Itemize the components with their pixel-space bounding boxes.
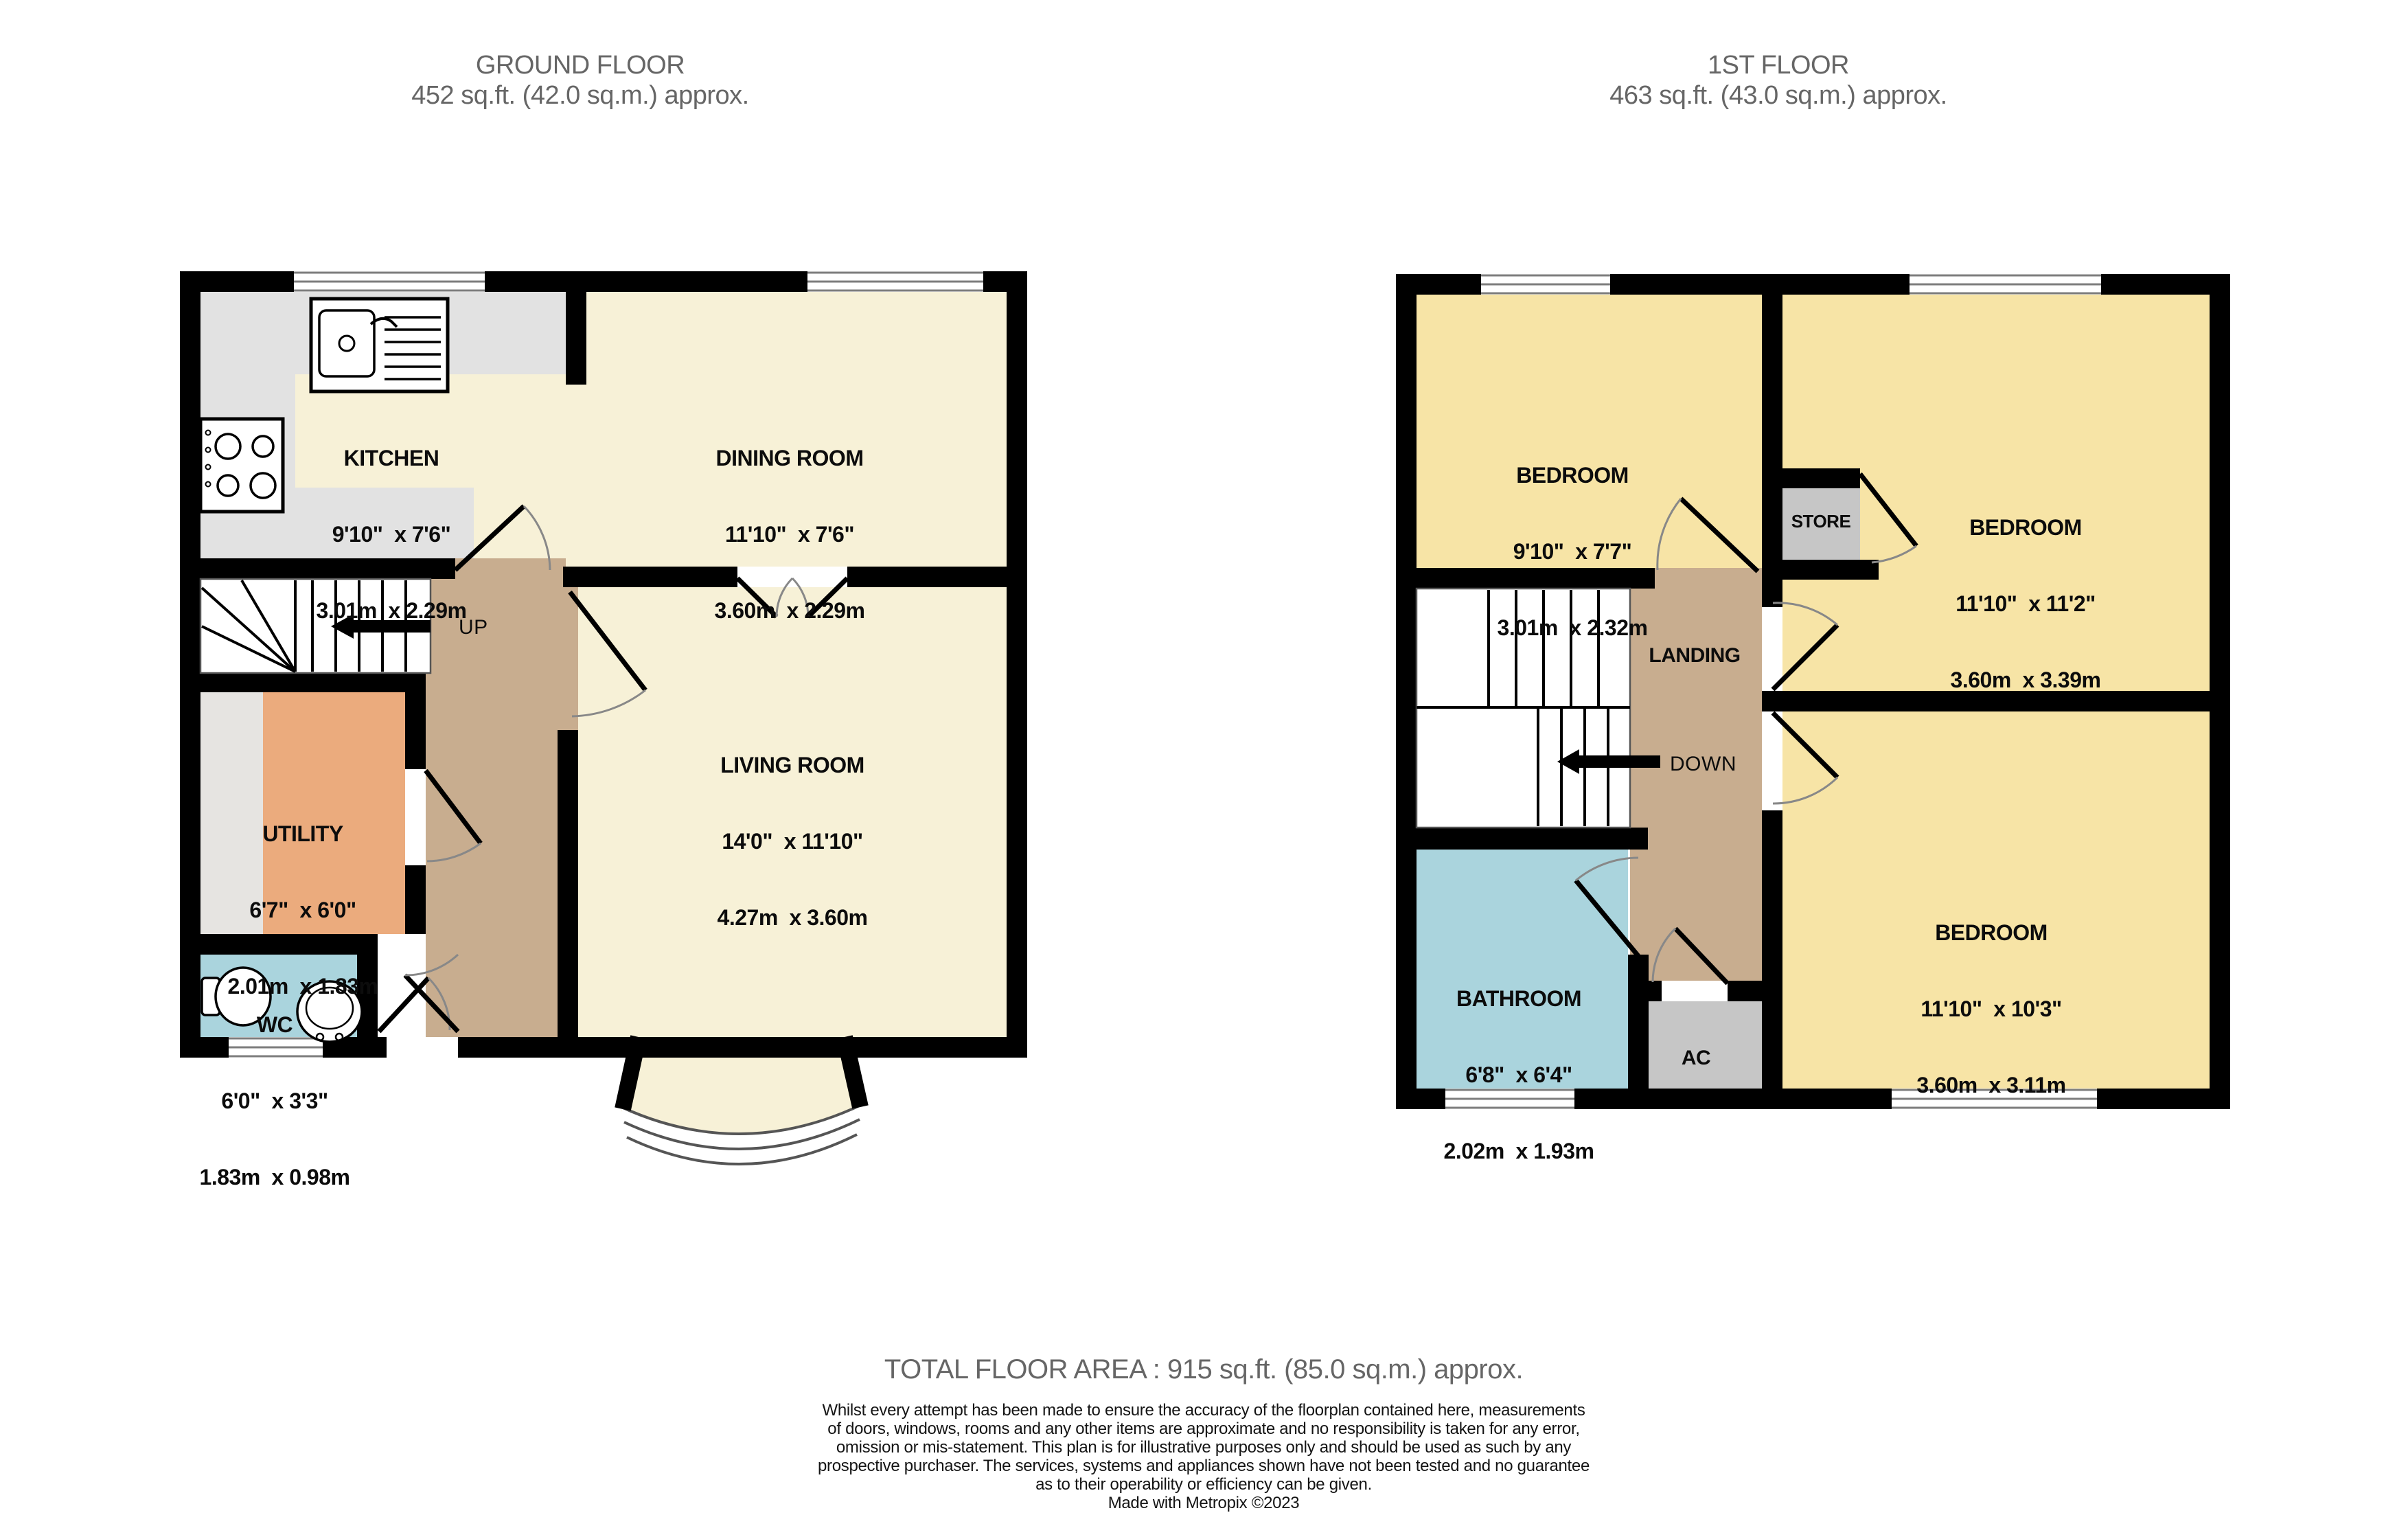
bedroom2-name: BEDROOM — [1951, 515, 2101, 540]
bedroom1-name: BEDROOM — [1498, 463, 1648, 488]
bathroom-dims-imperial: 6'8" x 6'4" — [1444, 1062, 1594, 1088]
ac-floor — [1649, 1001, 1762, 1089]
disclaimer-line: of doors, windows, rooms and any other i… — [827, 1420, 1579, 1438]
living-name: LIVING ROOM — [718, 753, 868, 778]
hob-icon — [200, 419, 283, 512]
bathroom-name: BATHROOM — [1444, 986, 1594, 1012]
bedroom1-dims-metric: 3.01m x 2.32m — [1498, 615, 1648, 641]
dining-window — [807, 271, 983, 292]
disclaimer-line: prospective purchaser. The services, sys… — [818, 1457, 1590, 1475]
wc-dims-imperial: 6'0" x 3'3" — [200, 1089, 350, 1114]
ground-floor-title: GROUND FLOOR — [476, 49, 685, 81]
bedroom3-name: BEDROOM — [1916, 920, 2065, 946]
disclaimer-line: Whilst every attempt has been made to en… — [822, 1401, 1585, 1420]
sink-unit-icon — [311, 299, 448, 391]
bedroom1-dims-imperial: 9'10" x 7'7" — [1498, 539, 1648, 565]
store-label: STORE — [1791, 511, 1851, 532]
disclaimer-line: omission or mis-statement. This plan is … — [836, 1438, 1571, 1457]
room-label-living: LIVING ROOM 14'0" x 11'10" 4.27m x 3.60m — [718, 702, 868, 981]
dining-dims-imperial: 11'10" x 7'6" — [715, 522, 865, 547]
kitchen-name: KITCHEN — [317, 446, 467, 471]
floorplan-graphic — [0, 0, 2408, 1515]
utility-dims-imperial: 6'7" x 6'0" — [228, 898, 378, 923]
bedroom2-window — [1910, 274, 2101, 295]
dining-dims-metric: 3.60m x 2.29m — [715, 598, 865, 624]
wc-name: WC — [200, 1012, 350, 1038]
front-door-opening — [387, 1037, 458, 1058]
made-with-metropix: Made with Metropix ©2023 — [1108, 1494, 1300, 1512]
kitchen-dims-imperial: 9'10" x 7'6" — [317, 522, 467, 547]
wc-dims-metric: 1.83m x 0.98m — [200, 1165, 350, 1190]
down-arrow — [1579, 755, 1660, 768]
floorplan-page: GROUND FLOOR 452 sq.ft. (42.0 sq.m.) app… — [0, 0, 2408, 1515]
room-label-bedroom3: BEDROOM 11'10" x 10'3" 3.60m x 3.11m — [1916, 869, 2065, 1149]
kitchen-dims-metric: 3.01m x 2.29m — [317, 598, 467, 624]
first-floor-title: 1ST FLOOR — [1708, 49, 1849, 81]
bathroom-dims-metric: 2.02m x 1.93m — [1444, 1139, 1594, 1164]
utility-name: UTILITY — [228, 821, 378, 847]
landing-floor-top — [1655, 568, 1762, 589]
room-label-wc: WC 6'0" x 3'3" 1.83m x 0.98m — [200, 961, 350, 1241]
ground-floor-subtitle: 452 sq.ft. (42.0 sq.m.) approx. — [411, 80, 748, 111]
disclaimer-line: as to their operability or efficiency ca… — [1035, 1475, 1372, 1494]
bedroom2-dims-metric: 3.60m x 3.39m — [1951, 668, 2101, 693]
up-label: UP — [459, 616, 488, 639]
landing-label: LANDING — [1649, 644, 1740, 668]
kitchen-window — [294, 271, 485, 292]
room-label-bedroom2: BEDROOM 11'10" x 11'2" 3.60m x 3.39m — [1951, 464, 2101, 744]
down-label: DOWN — [1670, 753, 1736, 776]
ac-label: AC — [1682, 1047, 1710, 1070]
dining-name: DINING ROOM — [715, 446, 865, 471]
room-label-bathroom: BATHROOM 6'8" x 6'4" 2.02m x 1.93m — [1444, 935, 1594, 1215]
bedroom3-dims-metric: 3.60m x 3.11m — [1916, 1073, 2065, 1098]
bedroom1-window — [1481, 274, 1610, 295]
living-dims-metric: 4.27m x 3.60m — [718, 905, 868, 931]
bedroom2-dims-imperial: 11'10" x 11'2" — [1951, 591, 2101, 617]
living-dims-imperial: 14'0" x 11'10" — [718, 829, 868, 854]
room-label-bedroom1: BEDROOM 9'10" x 7'7" 3.01m x 2.32m — [1498, 412, 1648, 692]
first-floor-subtitle: 463 sq.ft. (43.0 sq.m.) approx. — [1609, 80, 1947, 111]
room-label-kitchen: KITCHEN 9'10" x 7'6" 3.01m x 2.29m — [317, 395, 467, 674]
room-label-dining: DINING ROOM 11'10" x 7'6" 3.60m x 2.29m — [715, 395, 865, 674]
bedroom3-dims-imperial: 11'10" x 10'3" — [1916, 996, 2065, 1022]
total-floor-area: TOTAL FLOOR AREA : 915 sq.ft. (85.0 sq.m… — [884, 1354, 1523, 1385]
